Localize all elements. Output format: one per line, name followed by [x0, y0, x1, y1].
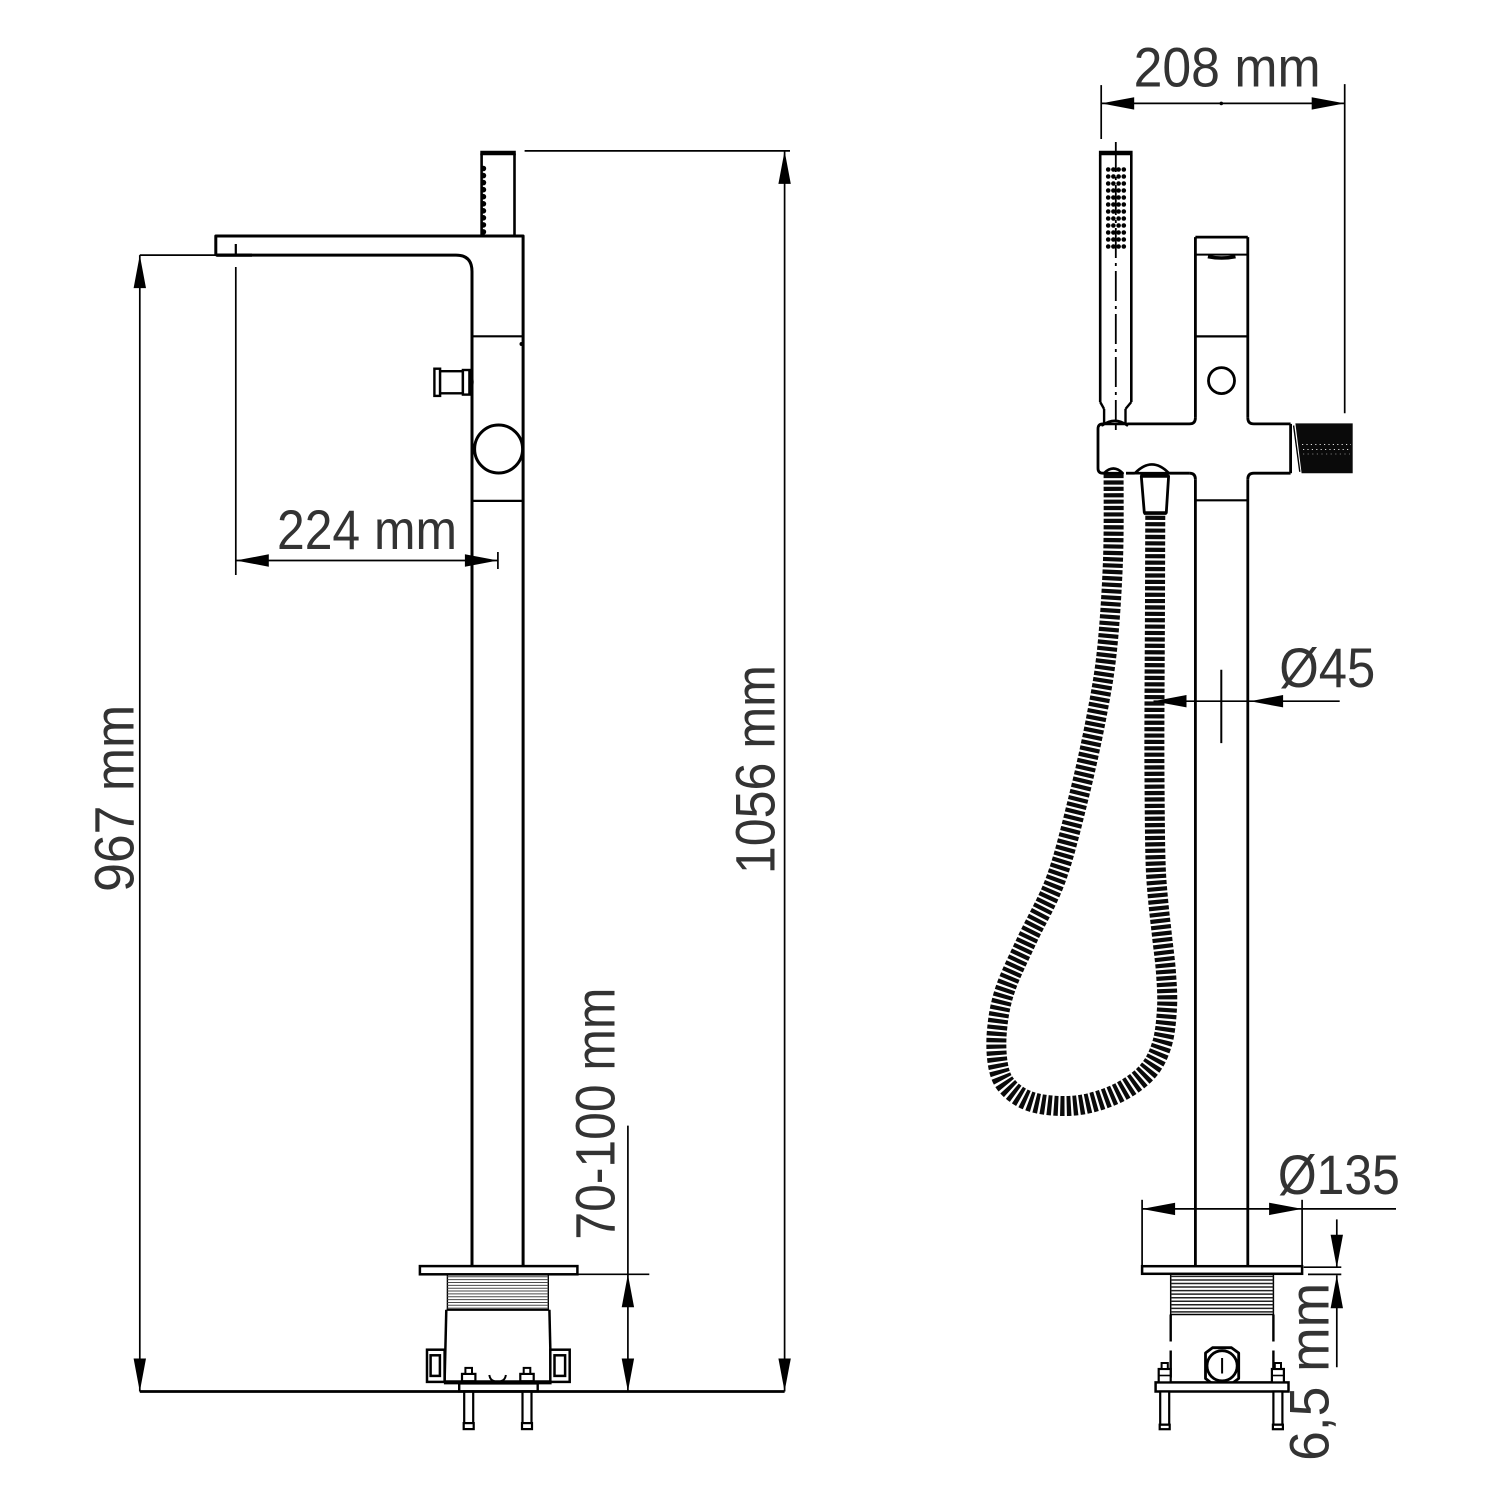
- svg-text:224 mm: 224 mm: [277, 499, 457, 561]
- svg-text:Ø135: Ø135: [1278, 1144, 1400, 1206]
- svg-text:6,5 mm: 6,5 mm: [1279, 1283, 1341, 1461]
- svg-text:967 mm: 967 mm: [84, 705, 146, 892]
- svg-text:70-100 mm: 70-100 mm: [564, 988, 626, 1240]
- svg-text:Ø45: Ø45: [1279, 637, 1375, 699]
- svg-text:208 mm: 208 mm: [1134, 37, 1321, 99]
- svg-text:1056 mm: 1056 mm: [725, 665, 787, 874]
